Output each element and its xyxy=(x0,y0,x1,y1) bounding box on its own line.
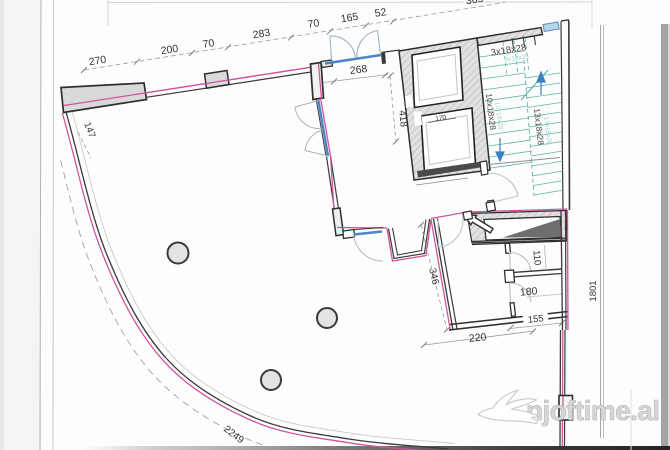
svg-text:200: 200 xyxy=(160,43,179,58)
svg-text:13x18x28: 13x18x28 xyxy=(532,108,546,146)
svg-text:155: 155 xyxy=(527,313,544,326)
svg-text:270: 270 xyxy=(88,54,107,69)
svg-text:70: 70 xyxy=(307,17,321,31)
svg-text:njoftime.al: njoftime.al xyxy=(526,395,659,426)
svg-text:2249: 2249 xyxy=(221,424,246,446)
svg-text:346: 346 xyxy=(426,267,441,286)
svg-text:70: 70 xyxy=(202,37,216,51)
svg-text:1801: 1801 xyxy=(588,280,599,301)
svg-text:147: 147 xyxy=(81,121,97,140)
svg-text:268: 268 xyxy=(349,63,368,77)
svg-text:180: 180 xyxy=(519,285,538,298)
svg-text:52: 52 xyxy=(374,6,388,20)
svg-text:165: 165 xyxy=(340,11,359,26)
svg-text:220: 220 xyxy=(468,331,487,345)
svg-text:283: 283 xyxy=(252,27,271,42)
svg-text:110: 110 xyxy=(530,250,542,266)
